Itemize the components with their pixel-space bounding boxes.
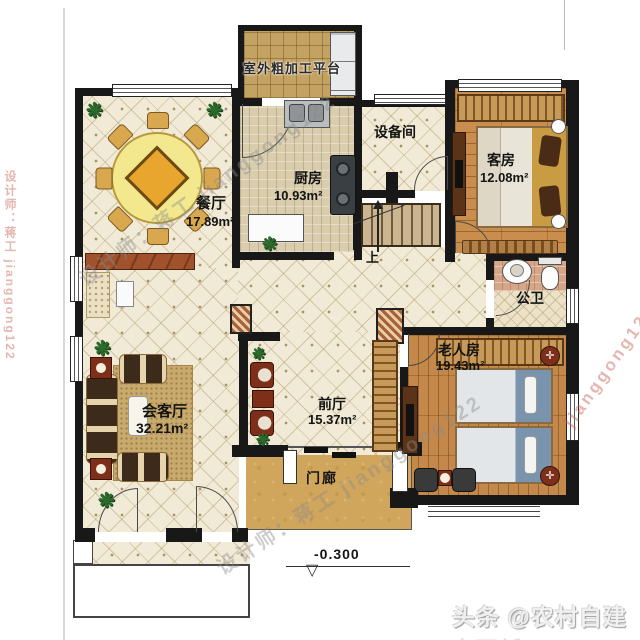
pillow [524,436,537,474]
door-leaf [196,486,197,532]
plant-icon: ❋ [98,488,115,513]
plant-icon: ❋ [252,344,265,364]
window [458,79,562,92]
wall [238,25,362,31]
sink-bowl [510,264,524,277]
wall [75,528,95,542]
wall [232,88,240,268]
label-bath: 公卫 [516,288,544,308]
label-dining-area: 17.89m² [186,214,234,229]
wall [75,88,83,535]
guest-wardrobe [457,94,565,122]
label-living: 会客厅 [142,400,187,421]
plant-icon: ❋ [256,430,269,450]
label-foyer: 前厅 [318,394,346,414]
page-edge-line [63,8,65,640]
dining-chair [147,228,169,245]
desk-chair [452,468,476,492]
plant-icon: ❋ [94,336,111,361]
tv-icon [455,160,463,188]
wall [493,253,579,261]
door-leaf [408,334,409,366]
entry-steps [73,564,250,618]
dining-chair [204,168,221,190]
foyer-table [252,390,274,408]
toilet-tank [538,257,562,265]
label-living-area: 32.21m² [136,420,188,436]
guest-rug [462,240,558,254]
label-foyer-area: 15.37m² [308,412,356,427]
designer-watermark-left: 设计师：蒋工 jianggong122 [2,170,19,340]
entrance-door-panel [332,452,356,458]
floor-plan: 上 ❋ [0,0,640,640]
door-leaf [447,156,448,190]
pillow [538,185,561,217]
window [112,84,232,97]
nightstand [551,214,566,229]
wall [362,190,415,198]
stair-arrow-line [377,208,379,252]
elevation-line [286,566,410,567]
label-guest-area: 12.08m² [480,170,528,185]
foyer-chair [250,362,274,388]
label-elder: 老人房 [438,340,480,360]
label-guest: 客房 [487,150,515,170]
tv-icon [406,404,414,436]
corner-step [73,540,93,564]
stair-arrow-head [373,200,383,209]
wall [239,333,248,445]
wall [486,253,494,280]
label-dining: 餐厅 [196,192,226,213]
plant-icon: ❋ [262,234,277,255]
toilet [541,266,559,290]
wall [400,495,579,505]
burner [336,162,350,176]
desk-chair [414,468,438,492]
label-kitchen-area: 10.93m² [274,188,322,203]
door-leaf [242,104,243,158]
label-elder-area: 19.43m² [436,358,484,373]
elevation-triangle: ▽ [306,560,318,580]
label-equipment: 设备间 [374,122,416,142]
entrance-door-panel [304,447,328,453]
pillow [524,376,537,414]
wall [445,253,455,261]
staircase [361,203,441,247]
nightstand: ✛ [540,346,560,366]
brick-pier [376,308,404,344]
porch-column [283,450,297,484]
brick-pier [230,304,252,334]
door-leaf [137,488,138,532]
window [70,336,83,382]
plant-icon: ❋ [86,98,103,123]
sofa-long [86,374,118,464]
exterior-steps [428,506,540,519]
nightstand: ✛ [540,466,560,486]
wall [386,172,398,203]
side-table [90,458,112,480]
stairs-up-label: 上 [366,247,379,266]
brand-watermark: 头条 @农村自建房图纸 [452,598,640,640]
label-porch: 门廊 [306,468,338,488]
sideboard [85,253,195,270]
elevation-label: -0.300 [314,546,360,562]
sofa-loveseat [119,354,167,384]
sink-basin [308,104,324,122]
burner [336,192,350,206]
elder-bed [455,368,553,424]
floor-terrace [73,542,250,564]
door-leaf [455,221,456,253]
dining-chair [147,112,169,129]
appliance [116,281,134,307]
desk-pad [438,470,452,486]
nightstand [551,119,566,134]
dining-chair [96,168,113,190]
window [566,288,579,324]
pillow [538,135,562,167]
foyer-wardrobe [372,340,398,452]
page-edge-line-top [564,0,565,50]
sofa-loveseat [117,452,169,482]
label-platform: 室外粗加工平台 [243,58,341,77]
label-kitchen: 厨房 [294,168,322,188]
porch-column [392,450,408,492]
window [566,393,579,441]
window [70,256,83,302]
floor-porch [246,455,412,530]
plant-icon: ❋ [206,98,223,123]
wall [238,252,334,260]
window [374,94,446,105]
sink-basin [289,104,305,122]
bench [86,272,110,318]
